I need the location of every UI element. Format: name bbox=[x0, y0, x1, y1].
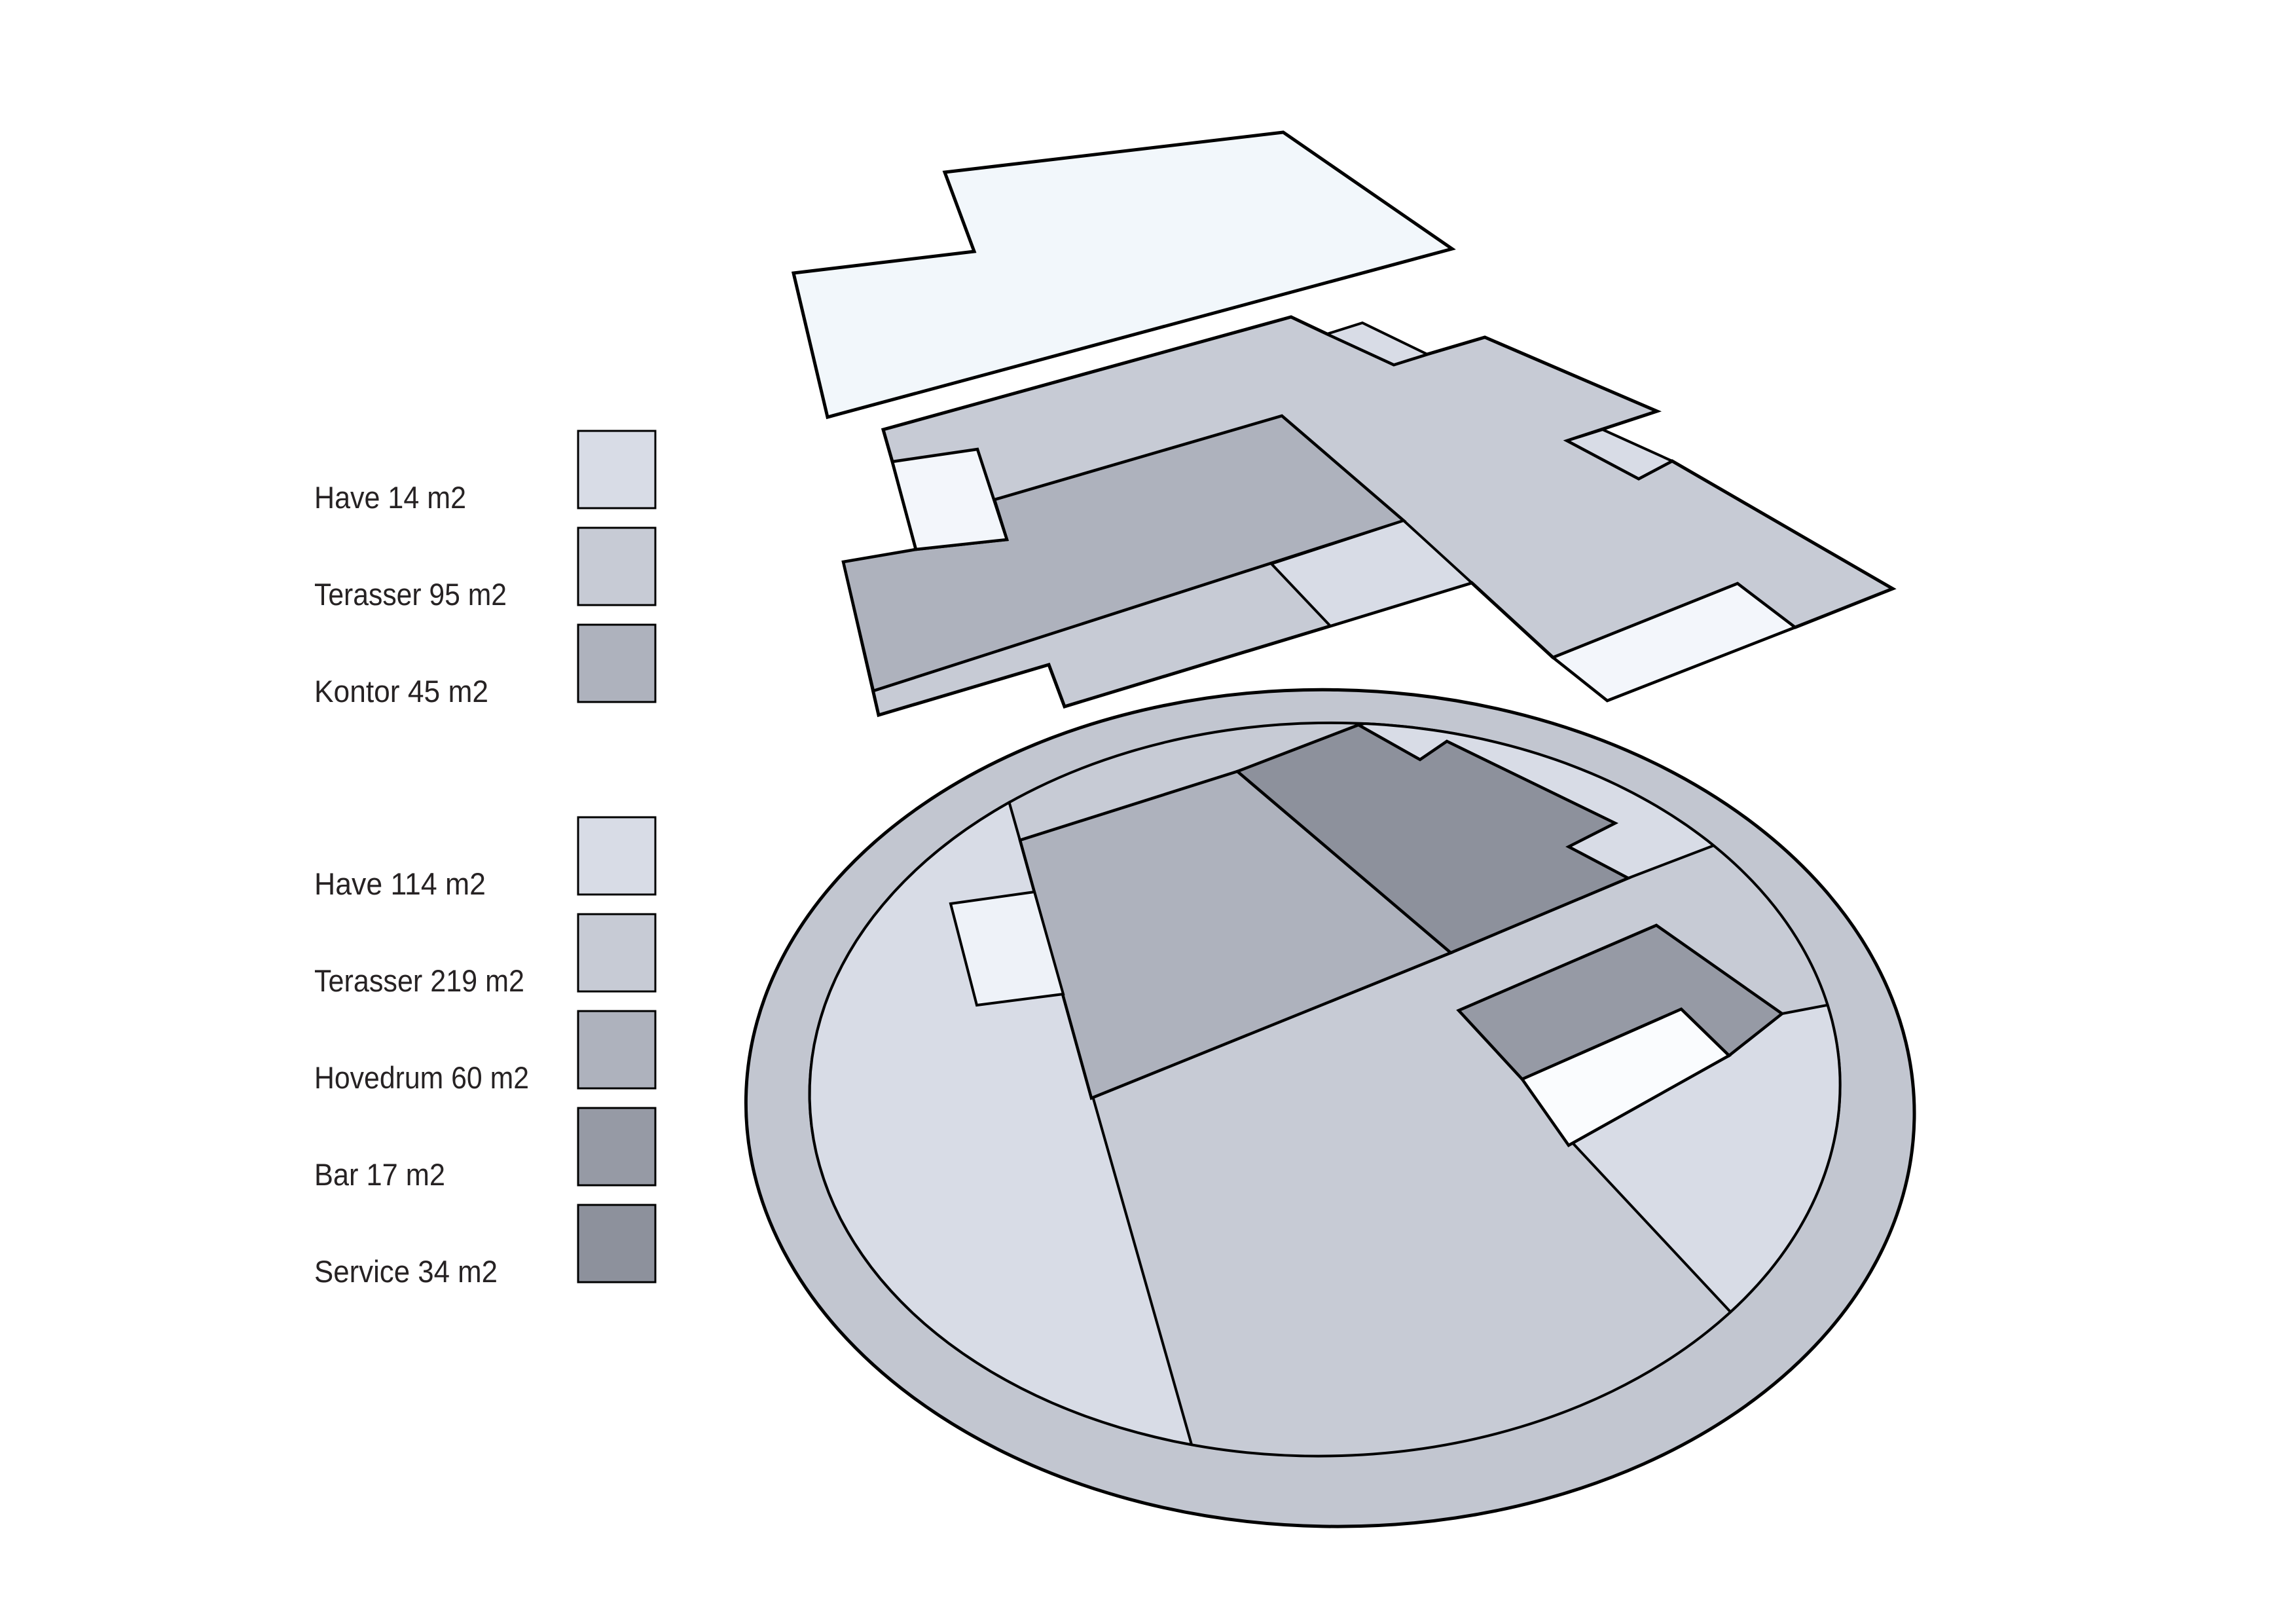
svg-text:Hovedrum 60 m2: Hovedrum 60 m2 bbox=[314, 1060, 529, 1095]
svg-text:Terasser 219 m2: Terasser 219 m2 bbox=[314, 963, 524, 998]
svg-text:Have 114 m2: Have 114 m2 bbox=[314, 866, 486, 901]
svg-text:Bar 17 m2: Bar 17 m2 bbox=[314, 1157, 445, 1192]
svg-text:Terasser 95 m2: Terasser 95 m2 bbox=[314, 577, 507, 612]
svg-text:Kontor 45 m2: Kontor 45 m2 bbox=[314, 674, 488, 709]
svg-text:Have 14 m2: Have 14 m2 bbox=[314, 480, 466, 515]
svg-text:Service 34 m2: Service 34 m2 bbox=[314, 1254, 498, 1289]
